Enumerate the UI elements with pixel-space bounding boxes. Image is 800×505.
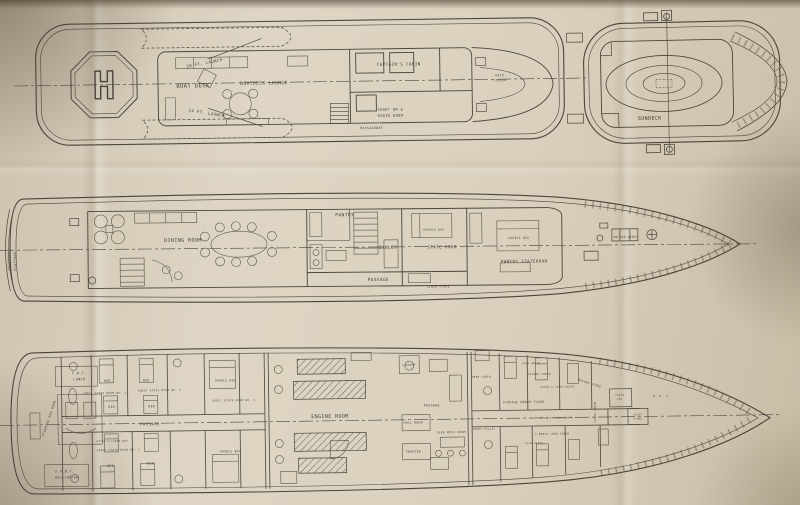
room-label: UPPER & LOWER BED [97, 440, 128, 443]
room-label: BED [147, 461, 154, 465]
room-label: GALLEY [378, 245, 397, 251]
room-label: LKR [617, 398, 623, 401]
room-label: RADIO ROOM [378, 114, 404, 118]
main-deckhouse [88, 207, 563, 288]
sundeck-mast-top [605, 9, 724, 155]
room-label: GUEST STATE ROOM NO. 1 [83, 391, 126, 396]
room-label: BED [104, 379, 111, 383]
room-label: PASSAGE [368, 277, 389, 283]
room-label: 24 FT. LAUNCH [188, 107, 225, 118]
room-label: STORE [634, 417, 643, 420]
room-label: 2 BERTH CREW CABIN [535, 431, 569, 435]
room-label: UPPER & LOWER BERTH [541, 385, 575, 388]
room-label: BOATDECK LOUNGE [240, 80, 288, 87]
room-label: H [92, 64, 116, 108]
room-label: CHART RM & [378, 108, 404, 112]
room-label: CHAIN [615, 394, 624, 397]
room-label: LAUNDRY [402, 363, 416, 367]
room-label: HIGH BERTH [525, 442, 543, 445]
boat-deck-plan: 20 FT. LAUNCHBOAT DECK24 FT. LAUNCHBOATD… [13, 17, 587, 146]
room-label: UPPER & LOWER BERTH [539, 416, 573, 419]
room-label: SWIMMING [7, 252, 11, 271]
room-label: GUEST STATE ROOM NO. 2 [138, 388, 181, 393]
room-label: HELICOPTER [55, 475, 78, 479]
main-deck-plan: SWIMMINGPLATFORMDINING ROOMPANTRYGALLEYP… [0, 190, 756, 305]
lower-deck-hull [10, 341, 771, 495]
room-label: PANTRY [335, 212, 354, 218]
room-label: BED [107, 464, 114, 468]
room-label: STEERING ENG ROOM [41, 400, 57, 437]
room-label: CAPTAIN'S CABIN [377, 61, 421, 67]
room-label: CREW MESS ROOM [437, 430, 466, 434]
room-label: STORAGE UNDER FLOOR [503, 400, 545, 405]
room-label: STATE ROOM [427, 244, 456, 249]
anchor-winch [584, 223, 657, 261]
room-label: BED [148, 404, 155, 408]
room-label: OWNERS STATEROOM [501, 259, 548, 264]
room-label: COOL ROOM [403, 421, 423, 425]
room-label: 20 FT. LAUNCH [186, 57, 223, 69]
room-label: DOUBLE BED [423, 227, 444, 231]
room-label: CREWS CABIN [593, 402, 597, 423]
room-label: GUEST STATE ROOM NO. 4 [212, 398, 255, 403]
room-label: LOCKER [493, 78, 506, 82]
sundeck-plan: SUNDECK [583, 8, 789, 156]
room-label: ANCHOR WINCH [613, 235, 638, 239]
room-label: PASSAGEWAY [360, 126, 383, 130]
room-label: F. P. T. [653, 394, 671, 398]
room-label: BOSUNS STORE [578, 378, 602, 389]
lower-deck-plan: F.B.T.LUNCHSTEERING ENG ROOMF.P.B.T.HELI… [0, 341, 783, 496]
room-label: SUNDECK [638, 115, 662, 121]
room-label: BED [143, 378, 150, 382]
room-label: PLATFORM [13, 252, 17, 271]
room-label: GUEST STATE ROOM NO. 3 [97, 447, 140, 452]
room-label: ENGINE ROOM [311, 414, 349, 421]
room-label: F.B.T. [72, 371, 87, 375]
room-label: LUNCH [73, 377, 85, 381]
room-label: DINING ROOM [164, 238, 202, 244]
engine-room [274, 351, 463, 484]
room-label: BED [108, 405, 115, 409]
room-label: FREEZER [406, 450, 422, 454]
room-label: PASSAGE [424, 403, 440, 407]
blueprint-photo: 20 FT. LAUNCHBOAT DECK24 FT. LAUNCHBOATD… [0, 0, 800, 505]
room-label: DOUBLE BED [220, 449, 241, 453]
room-label: HIGH BERTH [522, 362, 540, 365]
room-label: CREW CABIN [472, 375, 491, 379]
room-label: PASSAGE [140, 421, 160, 426]
room-label: PAINT [633, 413, 642, 416]
room-label: CREWS GALLEY [473, 427, 496, 431]
room-label: DOUBLE BED [508, 236, 529, 240]
room-label: OILERS CABIN [528, 372, 551, 376]
room-label: BOAT DECK [176, 83, 210, 89]
room-label: F.P.B.T. [55, 469, 74, 473]
room-label: LINEN STORE [427, 284, 450, 288]
deck-plans-svg: 20 FT. LAUNCHBOAT DECK24 FT. LAUNCHBOATD… [0, 0, 800, 505]
room-label: DOUBLE BED [215, 378, 236, 382]
room-label: DECK [495, 73, 504, 77]
